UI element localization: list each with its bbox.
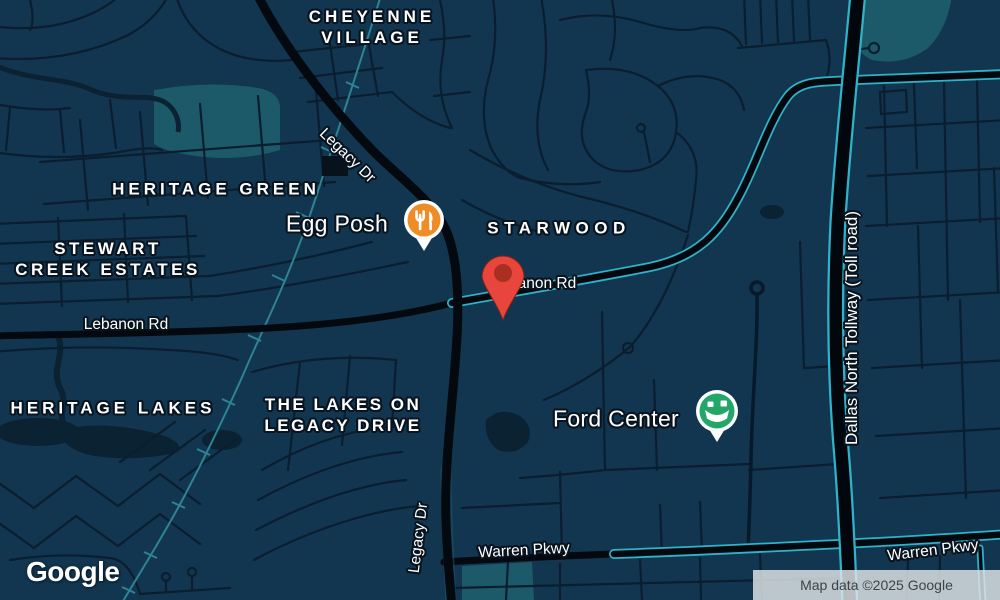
label-line: CREEK ESTATES xyxy=(15,259,201,280)
label-line: VILLAGE xyxy=(309,27,435,48)
poi-label-egg-posh[interactable]: Egg Posh xyxy=(286,211,388,238)
map-attribution: Map data ©2025 Google xyxy=(753,570,1000,600)
label-line: STEWART xyxy=(54,239,162,258)
label-line: CHEYENNE xyxy=(309,7,435,26)
neighborhood-label-heritage-lakes: HERITAGE LAKES xyxy=(11,398,216,419)
poi-label-ford-center[interactable]: Ford Center xyxy=(553,406,679,433)
destination-marker[interactable] xyxy=(477,246,529,322)
google-logo[interactable]: Google xyxy=(26,556,119,588)
map-canvas[interactable]: CHEYENNEVILLAGE HERITAGE GREEN STEWARTCR… xyxy=(0,0,1000,600)
restaurant-icon[interactable] xyxy=(402,199,446,255)
neighborhood-label-cheyenne-village: CHEYENNEVILLAGE xyxy=(309,6,435,48)
stadium-icon[interactable] xyxy=(694,388,740,446)
neighborhood-label-the-lakes-on-legacy-drive: THE LAKES ONLEGACY DRIVE xyxy=(264,394,421,436)
neighborhood-label-starwood: STARWOOD xyxy=(487,218,630,239)
neighborhood-label-heritage-green: HERITAGE GREEN xyxy=(112,179,320,200)
label-line: LEGACY DRIVE xyxy=(264,415,421,436)
neighborhood-label-stewart-creek-estates: STEWARTCREEK ESTATES xyxy=(15,238,201,280)
road-label-dallas-north-tollway: Dallas North Tollway (Toll road) xyxy=(842,211,862,445)
label-line: THE LAKES ON xyxy=(265,395,422,414)
road-label-lebanon-rd-west: Lebanon Rd xyxy=(84,316,168,334)
